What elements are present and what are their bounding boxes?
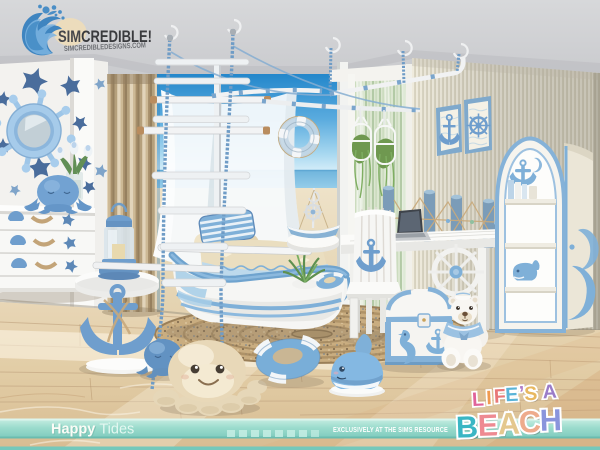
svg-text:I: I: [486, 387, 493, 409]
svg-text:A: A: [497, 407, 520, 442]
svg-text:Happy Tides: Happy Tides: [51, 422, 134, 438]
svg-text:S: S: [524, 383, 538, 406]
svg-text:A: A: [542, 381, 557, 404]
svg-text:C: C: [518, 405, 541, 440]
svg-text:EXCLUSIVELY AT THE SIMS RESOUR: EXCLUSIVELY AT THE SIMS RESOURCE: [333, 425, 448, 434]
svg-text:B: B: [455, 410, 478, 445]
svg-text:E: E: [505, 384, 519, 407]
svg-text:E: E: [477, 408, 499, 443]
svg-text:H: H: [539, 403, 562, 438]
svg-text:L: L: [472, 388, 485, 411]
